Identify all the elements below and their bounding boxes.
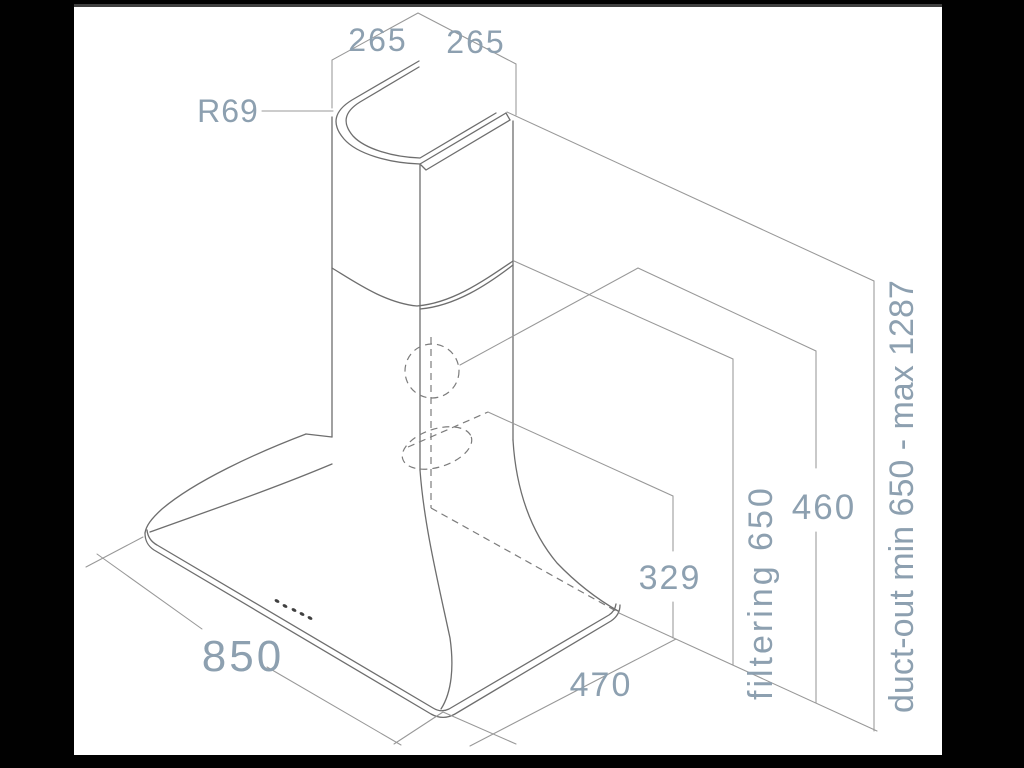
rim-thickness-edge bbox=[421, 120, 510, 170]
base-rim-outer bbox=[145, 533, 620, 717]
label-rear-outlet-height: 329 bbox=[639, 559, 702, 597]
rim-outer-edge bbox=[336, 61, 506, 164]
label-base-depth: 470 bbox=[570, 666, 633, 704]
base-rim-inner bbox=[147, 530, 616, 711]
dim-duct-out-line bbox=[507, 112, 874, 731]
rear-outlet-ellipse bbox=[397, 419, 477, 477]
label-top-outlet-height: 460 bbox=[792, 488, 856, 527]
top-outlet-circle bbox=[405, 344, 459, 398]
dimension-labels: 265 265 R69 850 470 329 460 filtering 65… bbox=[197, 22, 921, 713]
label-corner-radius: R69 bbox=[197, 93, 259, 129]
duct-outlets-hidden-lines bbox=[397, 337, 616, 611]
chimney-body bbox=[332, 117, 513, 470]
canopy-top-ledge bbox=[306, 434, 332, 437]
control-button bbox=[282, 603, 288, 608]
label-ducting-height: duct-out min 650 - max 1287 bbox=[883, 280, 921, 713]
control-button bbox=[274, 598, 280, 603]
rim-corner-fold bbox=[506, 113, 510, 120]
canopy-right-silhouette bbox=[513, 440, 618, 611]
control-button bbox=[299, 611, 305, 616]
technical-drawing: 265 265 R69 850 470 329 460 filtering 65… bbox=[0, 0, 1024, 768]
dim-329-line bbox=[488, 412, 673, 638]
dim-filtering-line bbox=[514, 261, 733, 665]
telescopic-joint-inner-edge bbox=[420, 265, 513, 309]
control-button bbox=[307, 615, 313, 620]
control-button bbox=[291, 607, 297, 612]
image-viewer-backdrop: 265 265 R69 850 470 329 460 filtering 65… bbox=[0, 0, 1024, 768]
chimney-top-rim bbox=[336, 61, 510, 170]
label-top-depth: 265 bbox=[446, 24, 505, 60]
duct-route-hidden-line bbox=[431, 508, 616, 611]
rim-inner-edge bbox=[346, 67, 496, 158]
label-top-width: 265 bbox=[348, 22, 407, 58]
label-filtering-height: filtering 650 bbox=[742, 485, 780, 700]
canopy-front-crease bbox=[420, 470, 452, 709]
label-base-width: 850 bbox=[202, 632, 284, 681]
